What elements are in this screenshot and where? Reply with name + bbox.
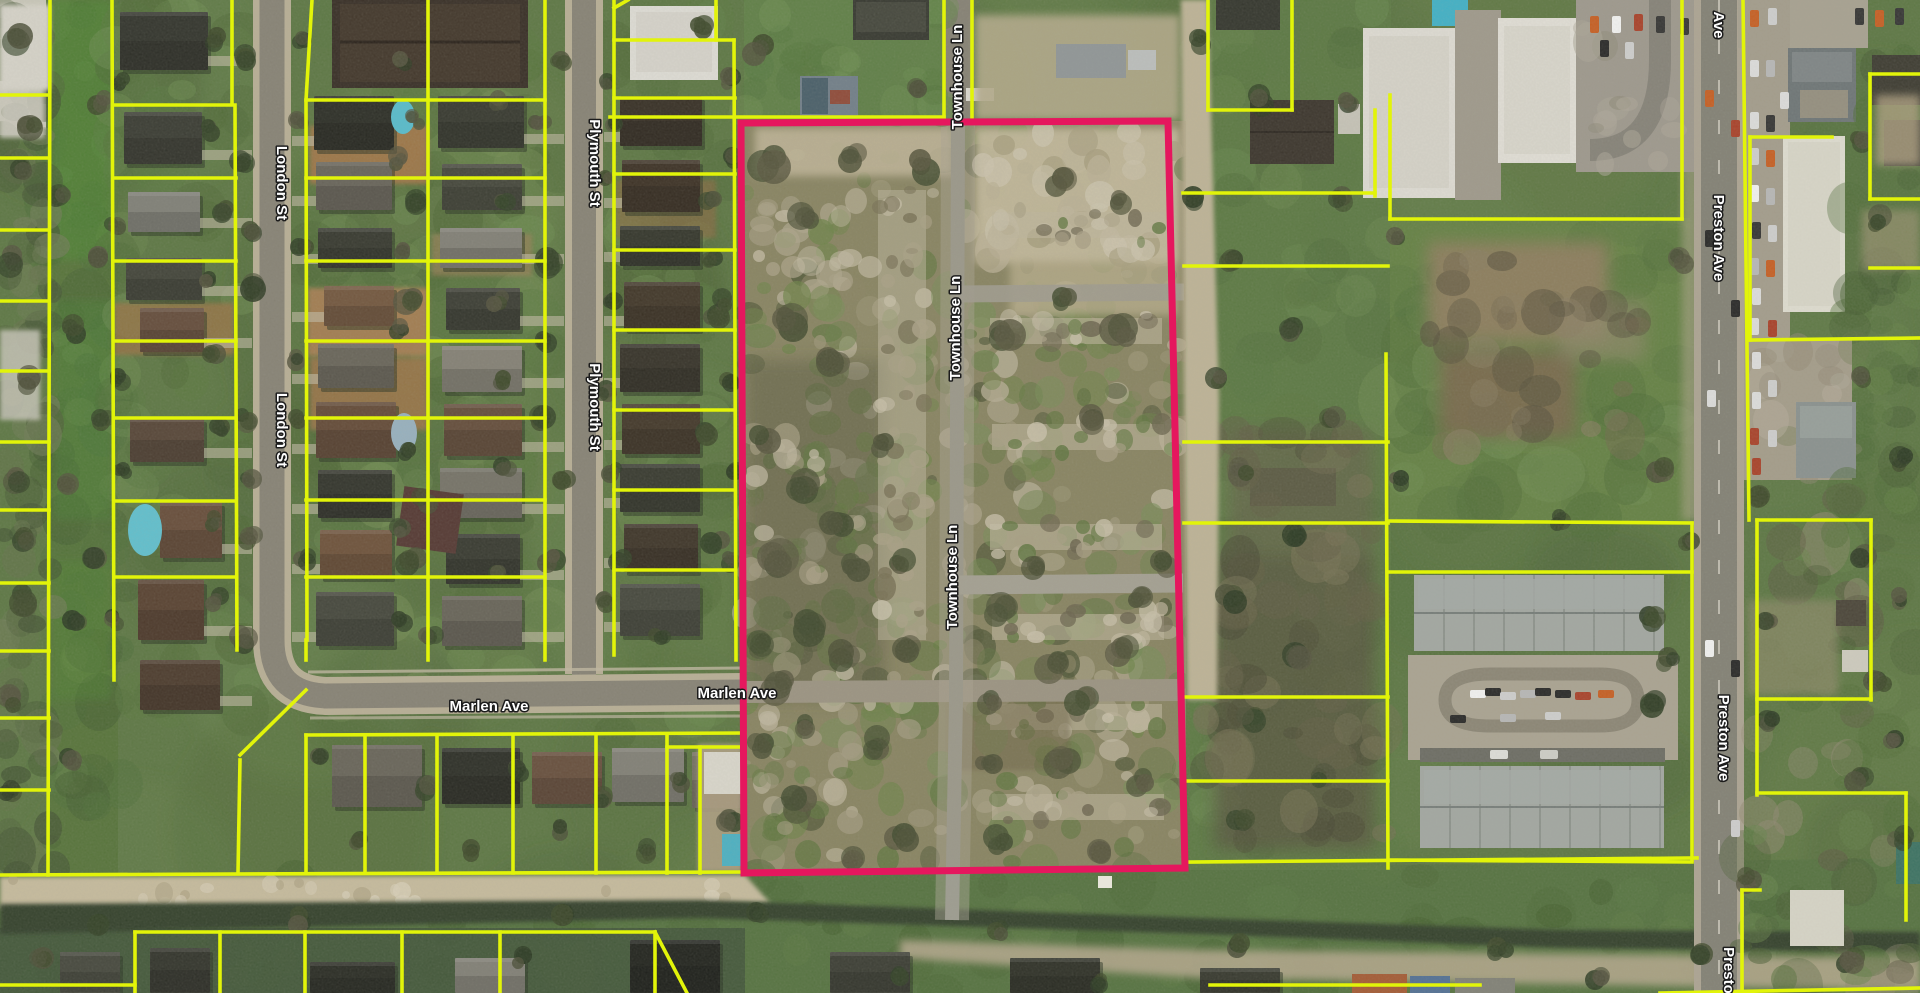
svg-text:Marlen Ave: Marlen Ave [450, 698, 529, 715]
svg-text:Ave: Ave [1710, 12, 1727, 39]
svg-text:Preston Ave: Preston Ave [1710, 195, 1727, 281]
svg-text:London St: London St [273, 393, 290, 467]
svg-text:Townhouse Ln: Townhouse Ln [949, 25, 966, 130]
svg-text:Marlen Ave: Marlen Ave [698, 685, 777, 702]
svg-text:Preston: Preston [1720, 947, 1737, 993]
svg-text:Plymouth St: Plymouth St [586, 119, 603, 207]
svg-text:Townhouse Ln: Townhouse Ln [947, 276, 964, 381]
svg-text:Preston Ave: Preston Ave [1715, 695, 1732, 781]
svg-text:Townhouse Ln: Townhouse Ln [944, 525, 961, 630]
svg-text:London St: London St [273, 146, 290, 220]
svg-text:Plymouth St: Plymouth St [586, 363, 603, 451]
